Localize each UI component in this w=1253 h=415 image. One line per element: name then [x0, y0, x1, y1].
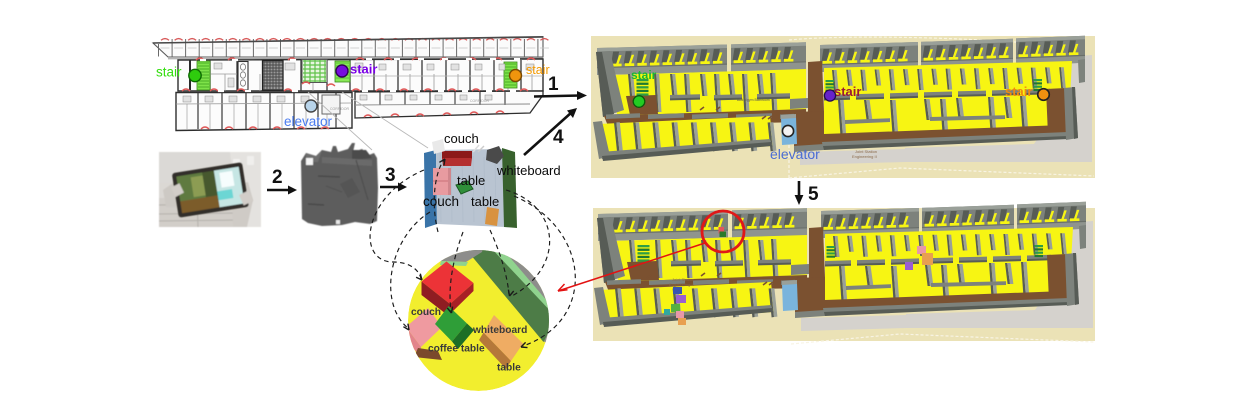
svg-text:CORRIDOR: CORRIDOR [470, 99, 490, 103]
svg-text:5: 5 [808, 184, 819, 205]
svg-text:stair: stair [1005, 84, 1032, 99]
svg-text:stair: stair [156, 65, 182, 80]
svg-text:elevator: elevator [770, 146, 820, 162]
svg-text:3: 3 [385, 165, 396, 186]
svg-text:table: table [497, 363, 521, 374]
svg-text:whiteboard: whiteboard [496, 163, 561, 178]
svg-text:Engineering II: Engineering II [669, 282, 694, 287]
svg-text:1: 1 [548, 74, 559, 95]
svg-text:Engineering II: Engineering II [852, 154, 877, 159]
svg-text:whiteboard: whiteboard [472, 325, 527, 336]
svg-text:couch: couch [444, 131, 479, 146]
svg-text:CORRIDOR: CORRIDOR [330, 107, 350, 111]
svg-text:table: table [457, 173, 485, 188]
svg-text:elevator: elevator [284, 114, 333, 129]
svg-text:table: table [471, 194, 499, 209]
svg-text:stair: stair [631, 68, 657, 82]
svg-text:stair: stair [350, 62, 377, 77]
svg-text:2: 2 [272, 167, 283, 188]
svg-text:stair: stair [526, 63, 550, 77]
svg-text:coffee table: coffee table [428, 344, 485, 355]
svg-text:4: 4 [553, 127, 564, 148]
svg-text:stair: stair [834, 84, 861, 99]
svg-text:couch: couch [411, 307, 441, 318]
svg-text:Audio/gym Bathroom: Audio/gym Bathroom [737, 98, 770, 102]
svg-text:couch: couch [423, 194, 459, 209]
